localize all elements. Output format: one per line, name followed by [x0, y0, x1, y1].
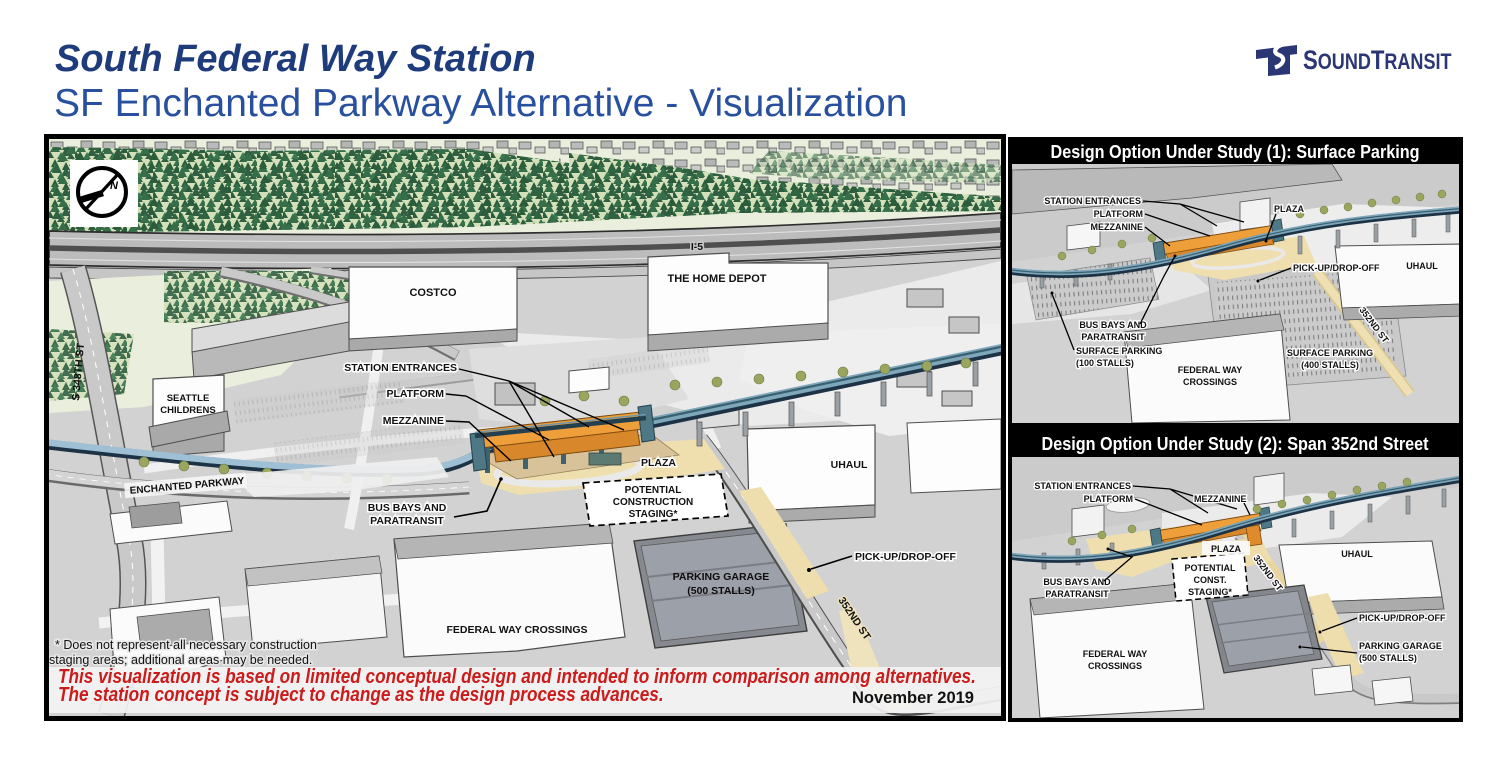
svg-text:November 2019: November 2019 [852, 689, 974, 707]
svg-text:CONSTRUCTION: CONSTRUCTION [613, 497, 694, 508]
svg-text:(400 STALLS): (400 STALLS) [1301, 360, 1359, 370]
svg-text:STATION ENTRANCES: STATION ENTRANCES [344, 362, 457, 374]
svg-text:CROSSINGS: CROSSINGS [1183, 377, 1237, 387]
svg-text:PARATRANSIT: PARATRANSIT [370, 515, 444, 527]
svg-text:PLAZA: PLAZA [641, 457, 676, 469]
svg-text:SURFACE PARKING: SURFACE PARKING [1076, 346, 1162, 356]
svg-text:PARKING GARAGE: PARKING GARAGE [1359, 641, 1442, 651]
svg-text:MEZZANINE: MEZZANINE [383, 415, 444, 427]
svg-text:PARATRANSIT: PARATRANSIT [1045, 589, 1109, 599]
svg-text:PICK-UP/DROP-OFF: PICK-UP/DROP-OFF [1359, 613, 1446, 623]
svg-text:CROSSINGS: CROSSINGS [1088, 661, 1142, 671]
svg-text:(500 STALLS): (500 STALLS) [1359, 653, 1417, 663]
svg-text:BUS BAYS AND: BUS BAYS AND [368, 502, 447, 514]
svg-text:POTENTIAL: POTENTIAL [1185, 563, 1237, 573]
svg-text:FEDERAL WAY: FEDERAL WAY [1083, 649, 1148, 659]
svg-text:BUS BAYS AND: BUS BAYS AND [1043, 577, 1111, 587]
svg-text:PICK-UP/DROP-OFF: PICK-UP/DROP-OFF [1293, 263, 1380, 273]
svg-text:PLATFORM: PLATFORM [1084, 494, 1133, 504]
svg-text:PARATRANSIT: PARATRANSIT [1081, 332, 1145, 342]
svg-text:N: N [110, 180, 119, 192]
svg-text:FEDERAL WAY: FEDERAL WAY [1178, 365, 1243, 375]
svg-text:* Does not represent all neces: * Does not represent all necessary const… [55, 638, 317, 652]
svg-text:THE HOME DEPOT: THE HOME DEPOT [667, 273, 766, 285]
svg-text:UHAUL: UHAUL [1341, 549, 1373, 559]
svg-text:STATION ENTRANCES: STATION ENTRANCES [1034, 481, 1131, 491]
svg-text:UHAUL: UHAUL [1406, 261, 1438, 271]
svg-text:I-5: I-5 [691, 241, 703, 253]
svg-text:SURFACE PARKING: SURFACE PARKING [1287, 348, 1373, 358]
svg-text:STAGING*: STAGING* [1188, 587, 1232, 597]
svg-text:PLATFORM: PLATFORM [386, 388, 444, 400]
svg-text:FEDERAL WAY CROSSINGS: FEDERAL WAY CROSSINGS [446, 624, 587, 636]
svg-text:The station concept is subject: The station concept is subject to change… [58, 683, 664, 706]
svg-text:MEZZANINE: MEZZANINE [1091, 222, 1144, 232]
svg-text:STAGING*: STAGING* [629, 509, 678, 520]
svg-text:CONST.: CONST. [1193, 575, 1226, 585]
svg-text:PARKING GARAGE: PARKING GARAGE [673, 571, 770, 583]
svg-text:PLAZA: PLAZA [1211, 544, 1241, 554]
svg-text:PICK-UP/DROP-OFF: PICK-UP/DROP-OFF [855, 551, 957, 563]
svg-text:(100 STALLS): (100 STALLS) [1076, 358, 1134, 368]
svg-text:(500 STALLS): (500 STALLS) [687, 585, 754, 597]
svg-text:POTENTIAL: POTENTIAL [625, 485, 682, 496]
svg-text:BUS BAYS AND: BUS BAYS AND [1079, 320, 1147, 330]
svg-text:MEZZANINE: MEZZANINE [1194, 494, 1247, 504]
svg-text:SEATTLE: SEATTLE [167, 393, 210, 404]
svg-text:STATION ENTRANCES: STATION ENTRANCES [1044, 196, 1141, 206]
svg-text:COSTCO: COSTCO [409, 287, 457, 299]
svg-text:SOUNDTRANSIT: SOUNDTRANSIT [1303, 46, 1452, 76]
svg-text:UHAUL: UHAUL [831, 459, 868, 471]
svg-text:CHILDRENS: CHILDRENS [160, 405, 215, 416]
svg-text:PLATFORM: PLATFORM [1094, 209, 1143, 219]
svg-text:PLAZA: PLAZA [1274, 204, 1304, 214]
